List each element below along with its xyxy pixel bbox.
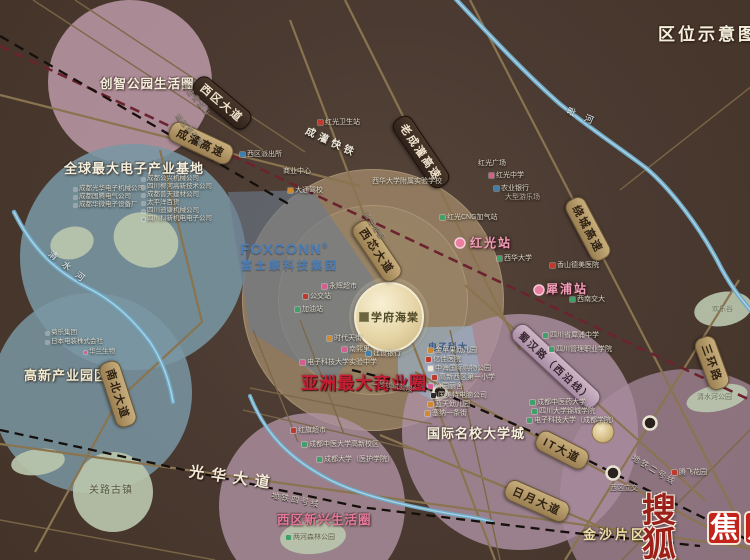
station-label-xipu: 犀浦站: [546, 280, 588, 297]
station-label-hongguang: 红光站: [470, 234, 512, 251]
project-logo-name: 学府海棠: [371, 309, 419, 325]
poi-item: 高新西区第一小学: [432, 374, 495, 381]
watermark-brand-block: 焦: [707, 511, 741, 545]
company-item: 成都公兴机械公司: [142, 176, 199, 183]
zone-label-jinsha: 金沙片区: [583, 524, 647, 543]
watermark-brand-text: 搜狐: [642, 494, 704, 560]
company-item: 四川迪康机械公司: [142, 208, 199, 215]
poi-item: 红光卫生站: [318, 119, 360, 126]
company-item: 成都光华电子机械公司: [74, 186, 144, 193]
poi-item: 西南交大: [570, 296, 605, 303]
zone-label-university-town: 国际名校大学城: [427, 423, 525, 442]
company-item: 太平洋百货: [142, 200, 180, 207]
poi-item: 亿佳医院: [426, 356, 461, 363]
poi-item: 公交站: [303, 293, 331, 300]
poi-item: 加油站: [295, 306, 323, 313]
poi-item: 塞纳一条街: [425, 410, 467, 417]
poi-item: 成都中医药大学: [530, 399, 586, 406]
poi-item: 四川省犀浦中学: [543, 332, 599, 339]
zone-label-west-new-life: 西区新兴生活圈: [277, 509, 372, 528]
poi-item: 电子科技大学（成都学院）: [527, 417, 618, 424]
poi-item: 红光广场: [478, 160, 506, 167]
poi-item: 四川大学锦城学院: [532, 408, 595, 415]
page-title: 区位示意图: [658, 20, 750, 45]
poi-item: 西华大学: [497, 255, 532, 262]
location-schematic-map: 区位示意图 创智公园生活圈 全球最大电子产业基地 高新产业园区 亚洲最大商业圈 …: [0, 0, 750, 560]
company-item: 四川柳河高新技术公司: [142, 184, 212, 191]
park-marker-icon: [286, 535, 291, 540]
foxconn-logo: FOXCONN®: [240, 241, 328, 258]
registered-mark-icon: ®: [322, 243, 328, 250]
poi-item: 红旗超市: [291, 427, 326, 434]
park-label-ancient-town: 关路古镇: [89, 487, 133, 494]
poi-item: 成都大学（医护学院）: [317, 456, 394, 463]
company-item: 成都普天建材公司: [142, 192, 199, 199]
company-item: 华兰生物: [84, 349, 115, 356]
poi-item: 红光CNG加气站: [440, 214, 498, 221]
poi-item: 电子科技大学实验中学: [300, 359, 377, 366]
gold-badge-icon: [592, 421, 614, 443]
foxconn-cn-label: 富士康科技集团: [241, 257, 339, 273]
watermark: 搜狐 焦 点 WWW.FOCUS.CN: [642, 494, 750, 560]
poi-item: 公园丽舍: [428, 383, 463, 390]
company-item: 四川科新机电电子公司: [142, 216, 212, 223]
poi-item: 西区派出所: [240, 151, 282, 158]
company-item: 成都国腾电气公司: [74, 194, 131, 201]
poi-item: 永辉超市: [322, 283, 357, 290]
poi-item: 西华大学附属实验学校: [372, 178, 442, 185]
project-logo-badge: 学府海棠: [354, 282, 424, 352]
poi-item: 大型游乐场: [505, 194, 540, 201]
poi-item: 中海国际购物公园: [428, 365, 491, 372]
zone-label-hightech-park: 高新产业园区: [24, 365, 108, 384]
poi-item: 金苹果幼儿园: [428, 347, 477, 354]
poi-item: 时代天街: [327, 335, 362, 342]
park-label-happy-valley: 欢乐谷: [712, 306, 733, 313]
company-item: 菊乐集团: [46, 330, 77, 337]
poi-item: 农业银行: [494, 185, 529, 192]
poi-item: 四川管理职业学院: [549, 346, 612, 353]
watermark-brand-block: 点: [744, 511, 750, 545]
poi-item: 香山德美医院: [550, 262, 599, 269]
poi-item: 蓝天幼儿园: [428, 401, 470, 408]
poi-item: 商业中心: [283, 168, 311, 175]
label-xiqu-interchange: 西区立交: [610, 483, 638, 493]
poi-item: 国美特电脑公司: [431, 392, 487, 399]
company-item: 成都华微电子设备厂: [74, 202, 138, 209]
project-seal-icon: [359, 312, 369, 322]
poi-item: 成都中医大学高新校区: [302, 441, 379, 448]
company-item: 日本电装株式会社: [46, 339, 103, 346]
park-label-lianghe-forest: 两河森林公园: [286, 534, 335, 541]
poi-item: 腾飞花园: [672, 469, 707, 476]
poi-item: 大通驾校: [288, 187, 323, 194]
poi-item: 建设银行: [366, 350, 401, 357]
park-label-qingshuihe-park: 清水河公园: [697, 394, 732, 401]
poi-item: 红光中学: [489, 172, 524, 179]
